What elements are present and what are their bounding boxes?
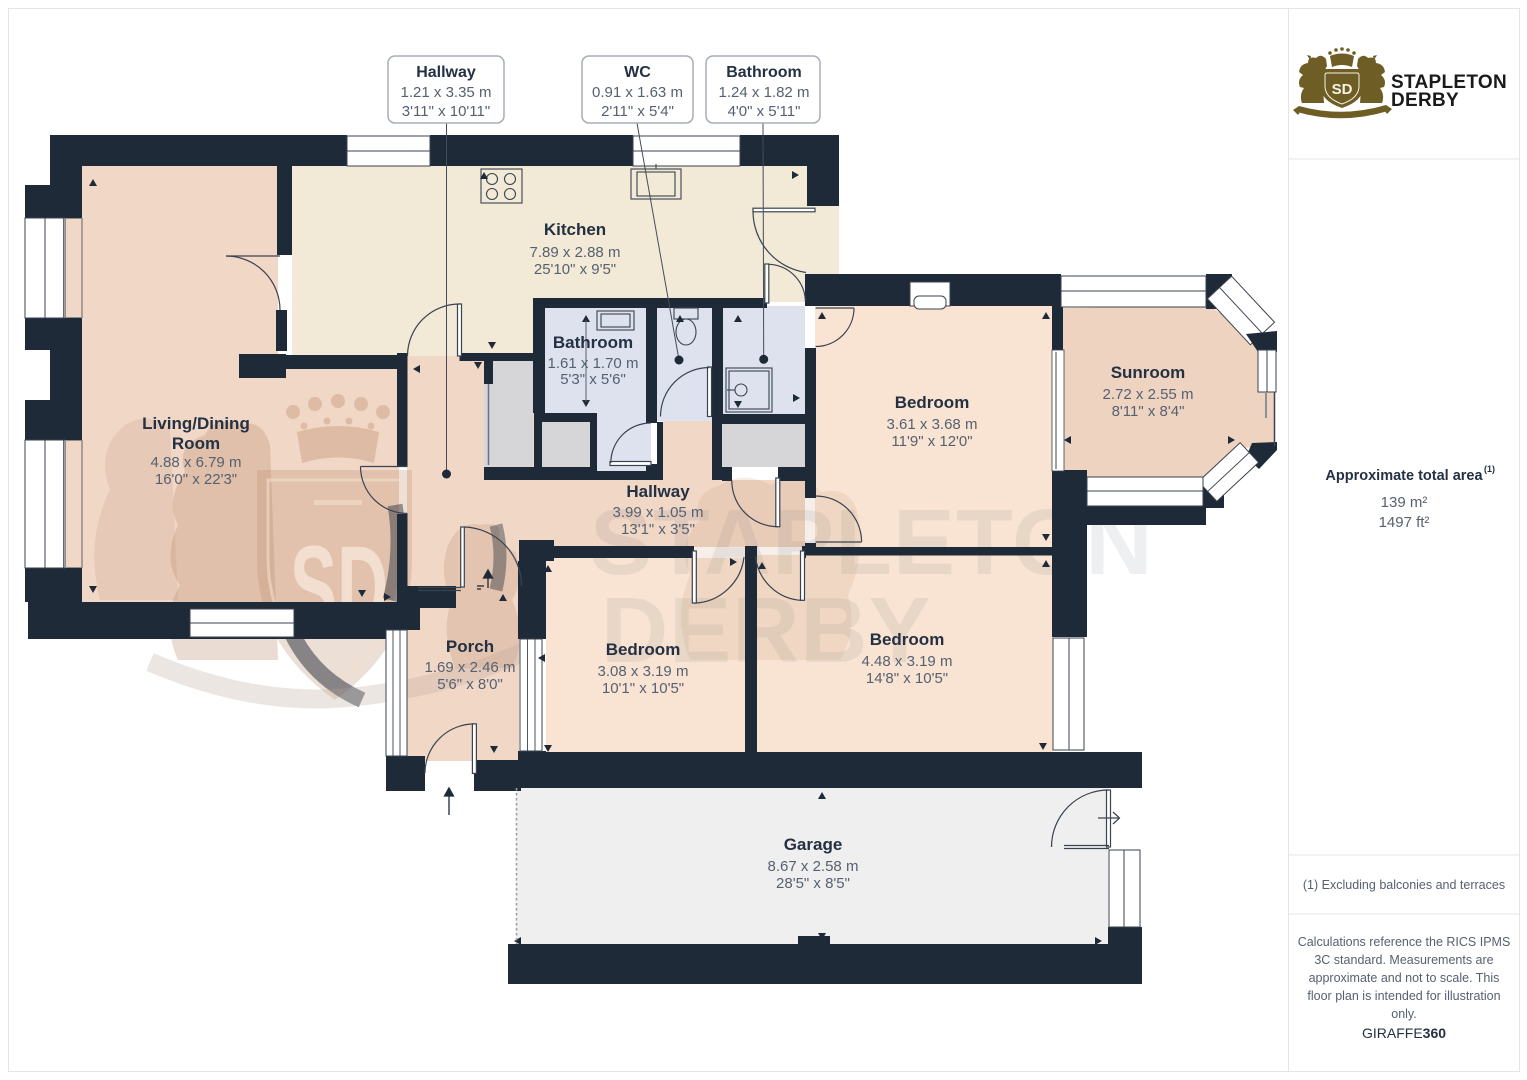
svg-text:Kitchen: Kitchen [544,220,606,239]
svg-text:Bedroom: Bedroom [606,640,681,659]
svg-text:8'11" x 8'4": 8'11" x 8'4" [1112,403,1185,420]
svg-text:Approximate total area: Approximate total area [1325,468,1483,484]
svg-text:7.89 x 2.88 m: 7.89 x 2.88 m [530,244,621,261]
svg-text:Living/Dining: Living/Dining [142,414,250,433]
svg-text:floor plan is intended for ill: floor plan is intended for illustration [1307,989,1500,1003]
svg-text:4.48 x 3.19 m: 4.48 x 3.19 m [862,653,953,670]
svg-text:1.61 x 1.70 m: 1.61 x 1.70 m [548,355,639,372]
svg-text:Bathroom: Bathroom [726,64,802,81]
svg-text:2'11" x 5'4": 2'11" x 5'4" [601,103,674,120]
svg-text:(1) Excluding balconies and te: (1) Excluding balconies and terraces [1303,878,1505,892]
svg-text:Garage: Garage [784,835,843,854]
svg-text:Porch: Porch [446,637,494,656]
svg-text:DERBY: DERBY [1391,90,1459,111]
svg-text:1.24 x 1.82 m: 1.24 x 1.82 m [719,84,810,101]
svg-text:139 m²: 139 m² [1381,494,1428,511]
svg-text:25'10" x 9'5": 25'10" x 9'5" [534,261,616,278]
svg-text:0.91 x 1.63 m: 0.91 x 1.63 m [592,84,683,101]
svg-text:3.61 x 3.68 m: 3.61 x 3.68 m [887,416,978,433]
svg-text:Room: Room [172,434,220,453]
svg-text:WC: WC [624,64,651,81]
svg-text:1.69 x 2.46 m: 1.69 x 2.46 m [425,659,516,676]
svg-text:Bedroom: Bedroom [895,393,970,412]
svg-text:1.21 x 3.35 m: 1.21 x 3.35 m [401,84,492,101]
svg-text:16'0" x 22'3": 16'0" x 22'3" [155,471,237,488]
svg-text:8.67 x 2.58 m: 8.67 x 2.58 m [768,858,859,875]
svg-text:Calculations reference the RIC: Calculations reference the RICS IPMS [1298,935,1511,949]
svg-text:1497 ft²: 1497 ft² [1379,514,1430,531]
svg-text:10'1" x 10'5": 10'1" x 10'5" [602,680,684,697]
svg-text:Bathroom: Bathroom [553,333,633,352]
svg-text:4'0" x 5'11": 4'0" x 5'11" [728,103,801,120]
svg-text:3C standard. Measurements are: 3C standard. Measurements are [1314,953,1493,967]
svg-text:4.88 x 6.79 m: 4.88 x 6.79 m [151,454,242,471]
svg-text:5'6" x 8'0": 5'6" x 8'0" [437,676,503,693]
svg-text:3'11" x 10'11": 3'11" x 10'11" [402,103,490,120]
svg-text:2.72 x 2.55 m: 2.72 x 2.55 m [1103,386,1194,403]
svg-text:Bedroom: Bedroom [870,630,945,649]
svg-text:SD: SD [1332,81,1353,98]
svg-text:Sunroom: Sunroom [1111,363,1186,382]
svg-text:Hallway: Hallway [416,64,476,81]
svg-text:11'9" x 12'0": 11'9" x 12'0" [891,433,972,450]
svg-text:GIRAFFE360: GIRAFFE360 [1362,1025,1446,1041]
svg-text:(1): (1) [1484,464,1495,474]
svg-text:28'5" x 8'5": 28'5" x 8'5" [776,875,850,892]
svg-text:3.08 x 3.19 m: 3.08 x 3.19 m [598,663,689,680]
svg-text:14'8" x 10'5": 14'8" x 10'5" [866,670,948,687]
svg-text:approximate and not to scale.: approximate and not to scale. This [1309,971,1500,985]
svg-text:only.: only. [1391,1007,1416,1021]
svg-text:Hallway: Hallway [626,482,690,501]
svg-text:5'3" x 5'6": 5'3" x 5'6" [560,371,626,388]
svg-text:3.99 x 1.05 m: 3.99 x 1.05 m [613,504,704,521]
svg-text:13'1" x 3'5": 13'1" x 3'5" [621,521,695,538]
